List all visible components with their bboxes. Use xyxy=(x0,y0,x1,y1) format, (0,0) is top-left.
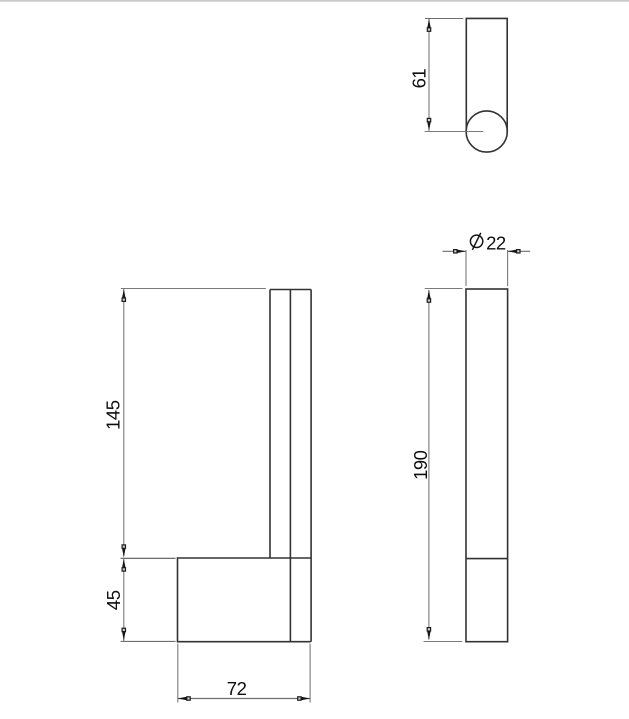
svg-text:145: 145 xyxy=(103,400,124,430)
svg-text:22: 22 xyxy=(486,233,506,254)
svg-text:61: 61 xyxy=(408,69,429,89)
svg-text:190: 190 xyxy=(410,450,431,480)
svg-text:72: 72 xyxy=(227,678,247,699)
svg-text:45: 45 xyxy=(103,590,124,610)
